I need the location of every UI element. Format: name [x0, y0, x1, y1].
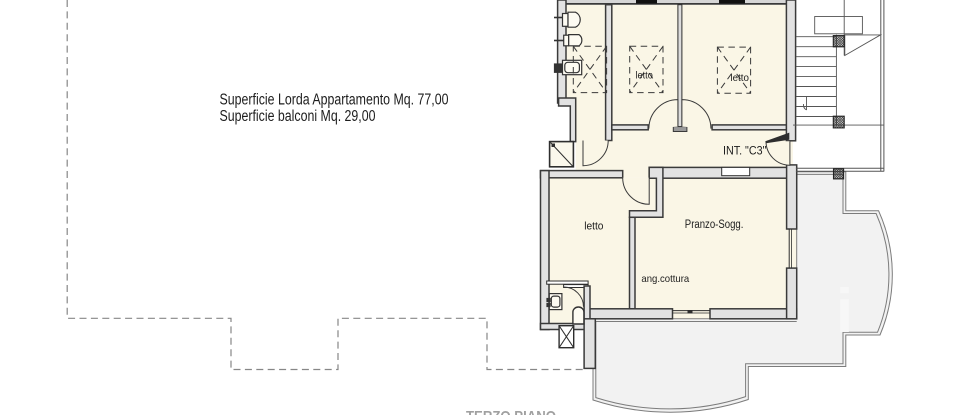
svg-text:i: i [836, 277, 853, 346]
svg-text:INT. "C3": INT. "C3" [723, 146, 766, 158]
svg-text:Superficie balconi Mq. 29,00: Superficie balconi Mq. 29,00 [220, 108, 376, 125]
svg-text:TERZO PIANO: TERZO PIANO [466, 408, 556, 415]
svg-text:Superficie Lorda Appartamento: Superficie Lorda Appartamento Mq. 77,00 [220, 92, 449, 109]
svg-text:letto: letto [636, 69, 653, 81]
svg-text:Pranzo-Sogg.: Pranzo-Sogg. [685, 219, 744, 231]
svg-text:letto: letto [584, 221, 603, 233]
svg-text:letto: letto [730, 72, 749, 84]
svg-text:ang.cottura: ang.cottura [641, 273, 689, 285]
